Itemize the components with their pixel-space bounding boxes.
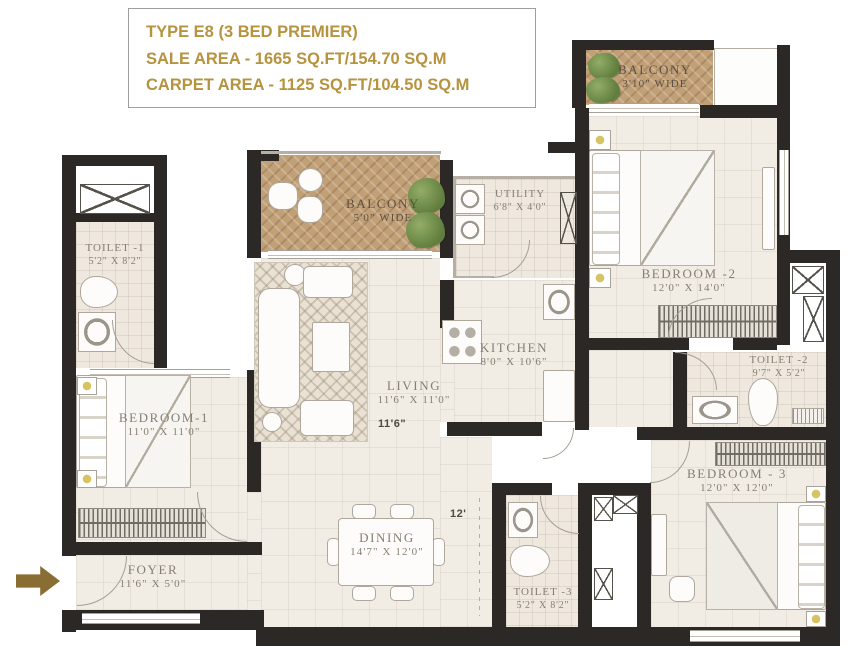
label-dining: DINING 14'7" X 12'0"	[342, 530, 432, 560]
bedroom1-wardrobe	[78, 508, 206, 538]
wall-shaft2-left	[777, 263, 790, 345]
wall-right-outer	[826, 255, 840, 646]
wall-balcony-left	[247, 158, 261, 258]
label-balcony-living: BALCONY 5'0" WIDE	[328, 196, 438, 226]
shaft2-xbox-a	[792, 266, 824, 294]
toilet2-wc	[748, 378, 778, 426]
armchair-top	[303, 266, 353, 298]
kitchen-counter	[543, 370, 575, 422]
bedroom3-chair	[669, 576, 695, 602]
label-kitchen: KITCHEN 8'0" X 10'6"	[455, 340, 573, 370]
living-balcony-window	[268, 250, 432, 259]
wall-bedroom2-top	[700, 105, 790, 118]
dining-chair-3	[352, 586, 376, 601]
floor-plan-page: BALCONY 3'10" WIDE BALCONY 5'0" WIDE UTI…	[0, 0, 856, 664]
shaft3-xbox-a	[594, 497, 613, 521]
shaft3-xbox-b	[613, 495, 638, 514]
corridor-floor	[589, 350, 673, 427]
wall-bedroom2-bottom-a	[589, 338, 689, 350]
bedroom3-nightstand-2	[806, 611, 826, 627]
label-bedroom3: BEDROOM - 3 12'0" X 12'0"	[656, 466, 818, 496]
balcony-chair-2	[297, 196, 323, 223]
wall-shaft2-top	[777, 250, 840, 263]
wall-toilet3-top	[492, 483, 552, 495]
dining-dim-line	[479, 498, 480, 616]
kitchen-sink	[543, 284, 575, 320]
bedroom2-pillows	[592, 153, 620, 265]
wall-bedroom3-top	[637, 427, 840, 440]
wall-balconytop-left	[572, 40, 586, 108]
bedroom3-wardrobe	[715, 442, 826, 466]
utility-kitchen-divider	[456, 276, 494, 278]
sofa	[258, 288, 300, 408]
bedroom3-pillows	[798, 505, 825, 609]
plan-type-title: TYPE E8 (3 BED PREMIER)	[146, 19, 518, 46]
label-balcony-top: BALCONY 3'10" WIDE	[600, 62, 710, 92]
wall-bedroom3-left	[637, 483, 651, 628]
label-toilet3: TOILET -3 5'2" X 8'2"	[505, 586, 581, 612]
wall-kitchen-right	[575, 348, 589, 430]
wall-toilet1-top	[62, 155, 167, 166]
bedroom2-nightstand-1	[589, 130, 611, 150]
sale-area-text: SALE AREA - 1665 SQ.FT/154.70 SQ.M	[146, 46, 518, 73]
pouf	[262, 412, 282, 432]
entrance-arrow-icon	[16, 566, 60, 596]
bedroom3-desk	[651, 514, 667, 576]
bedroom1-nightstand-2	[77, 470, 97, 488]
toilet2-shower	[792, 408, 824, 424]
bedroom3-duvet	[706, 502, 778, 610]
wall-shaft1-divider	[76, 213, 154, 222]
bedroom2-balcony-window	[589, 103, 699, 113]
label-foyer: FOYER 11'6" X 5'0"	[98, 562, 208, 592]
wall-balcony-right	[440, 160, 453, 258]
label-bedroom2: BEDROOM -2 12'0" X 14'0"	[608, 266, 770, 296]
balcony-railing	[261, 151, 441, 154]
label-bedroom1: BEDROOM-1 11'0" X 11'0"	[88, 410, 240, 440]
shaft2-xbox-b	[803, 296, 824, 342]
shaft3-xbox-c	[594, 568, 613, 600]
utility-top-line	[453, 176, 575, 179]
kitchen-door-arc	[543, 428, 574, 459]
label-living: LIVING 11'6" X 11'0"	[358, 378, 470, 408]
washing-machine-2	[455, 215, 485, 245]
wall-toilet3-left	[492, 483, 506, 628]
bedroom1-nightstand-1	[77, 377, 97, 395]
dining-width-label: 12'	[450, 508, 466, 520]
entrance-opening	[62, 556, 76, 610]
balcony-chair-1	[268, 182, 298, 210]
wall-kitchen-bottom	[447, 422, 542, 436]
wall-bedroom2-bottom-b	[733, 338, 777, 350]
label-utility: UTILITY 6'8" X 4'0"	[468, 188, 572, 214]
toilet1-basin	[78, 312, 116, 352]
toilet2-basin	[692, 396, 738, 424]
roof-ledge	[714, 48, 778, 106]
label-toilet1: TOILET -1 5'2" X 8'2"	[70, 242, 160, 268]
coffee-table	[312, 322, 350, 372]
carpet-area-text: CARPET AREA - 1125 SQ.FT/104.50 SQ.M	[146, 72, 518, 99]
bedroom2-window-seat	[762, 167, 775, 250]
toilet3-basin	[508, 502, 538, 538]
shaft1-xbox	[80, 184, 150, 214]
wall-balconytop-top	[572, 40, 714, 50]
bedroom2-window	[779, 150, 789, 235]
dining-right-floor	[440, 437, 492, 627]
dining-chair-1	[352, 504, 376, 519]
balcony-table	[298, 168, 323, 192]
dining-chair-2	[390, 504, 414, 519]
bedroom2-duvet	[640, 150, 715, 266]
label-toilet2: TOILET -2 9'7" X 5'2"	[732, 354, 826, 380]
armchair-bottom	[300, 400, 354, 436]
dining-chair-4	[390, 586, 414, 601]
title-block: TYPE E8 (3 BED PREMIER) SALE AREA - 1665…	[128, 8, 536, 108]
bedroom3-window	[690, 630, 800, 642]
bedroom1-door-floor	[247, 492, 261, 627]
wall-utility-top-stub	[548, 142, 590, 153]
foyer-niche	[82, 613, 200, 624]
wall-bedroom1-bottom	[62, 542, 262, 555]
living-width-label: 11'6"	[378, 418, 406, 430]
